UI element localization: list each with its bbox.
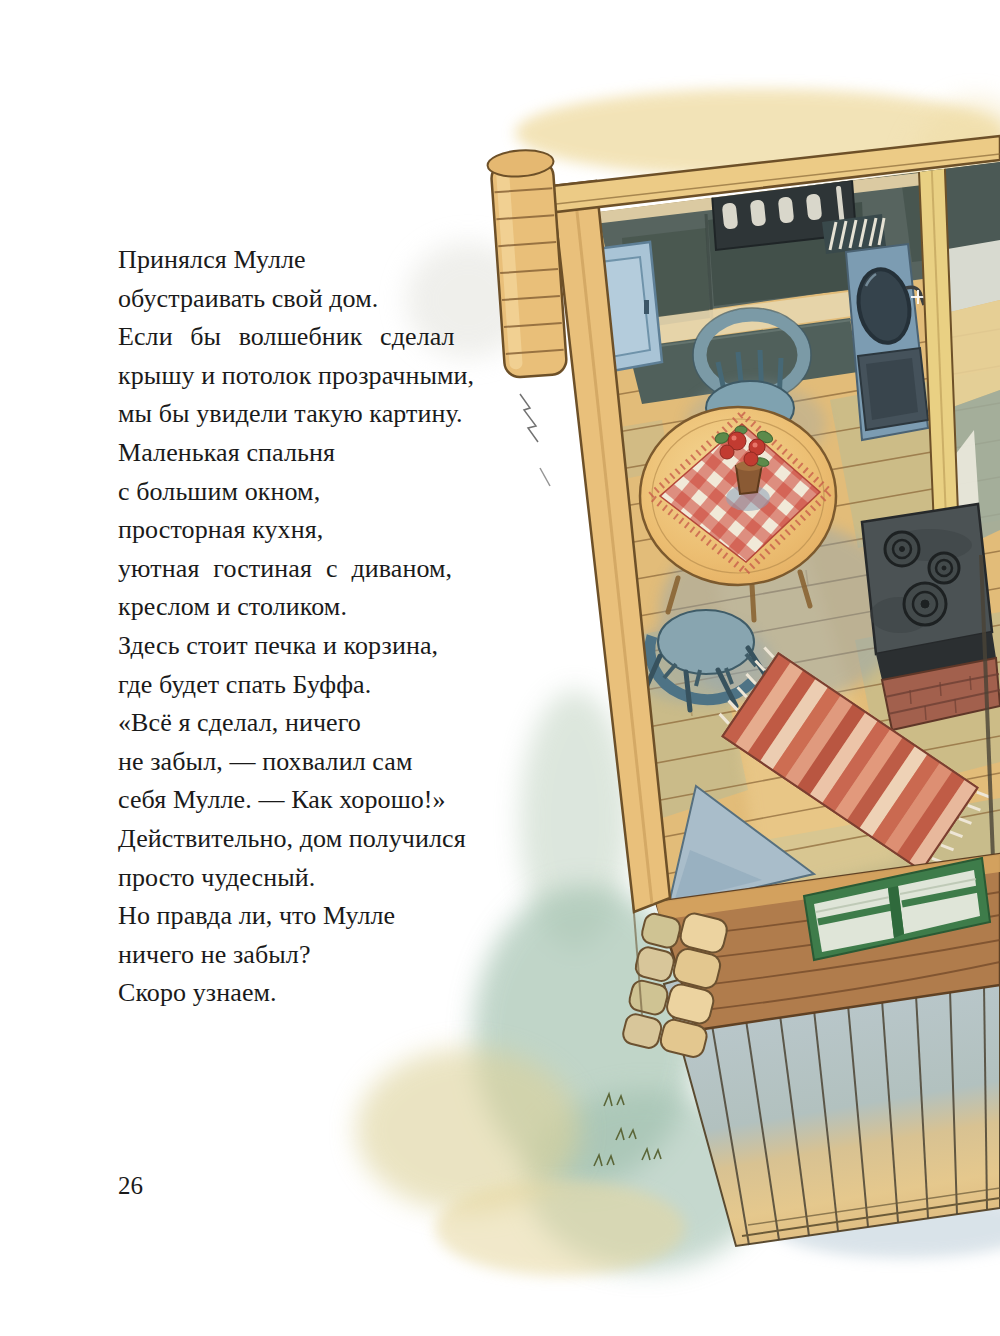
story-text: Принялся Мулле обустраивать свой дом. Ес…: [118, 241, 498, 1013]
cabinet-handle: [644, 300, 649, 314]
text-line: Действительно, дом получился: [118, 820, 498, 859]
text-line: просторная кухня,: [118, 511, 498, 550]
text-line: где будет спать Буффа.: [118, 666, 498, 705]
text-line: креслом и столиком.: [118, 588, 498, 627]
text-line: Принялся Мулле: [118, 241, 498, 280]
wash-yellow-bottom: [435, 1180, 685, 1276]
text-line: уютная гостиная с диваном,: [118, 550, 498, 589]
text-line: крышу и потолок прозрачными,: [118, 357, 498, 396]
text-line: Скоро узнаем.: [118, 974, 498, 1013]
page-number: 26: [118, 1172, 143, 1200]
text-line: себя Мулле. — Как хорошо!»: [118, 781, 498, 820]
text-line: просто чудесный.: [118, 859, 498, 898]
book-page: Принялся Мулле обустраивать свой дом. Ес…: [0, 0, 1000, 1336]
text-line: не забыл, — похвалил сам: [118, 743, 498, 782]
text-line: Здесь стоит печка и корзина,: [118, 627, 498, 666]
text-line: обустраивать свой дом.: [118, 280, 498, 319]
text-line: мы бы увидели такую картину.: [118, 395, 498, 434]
text-line: ничего не забыл?: [118, 936, 498, 975]
text-line: Но правда ли, что Мулле: [118, 897, 498, 936]
text-line: Маленькая спальня: [118, 434, 498, 473]
text-line: Если бы волшебник сделал: [118, 318, 498, 357]
text-line: с большим окном,: [118, 473, 498, 512]
text-line: «Всё я сделал, ничего: [118, 704, 498, 743]
pencil-squiggle: [520, 394, 538, 442]
